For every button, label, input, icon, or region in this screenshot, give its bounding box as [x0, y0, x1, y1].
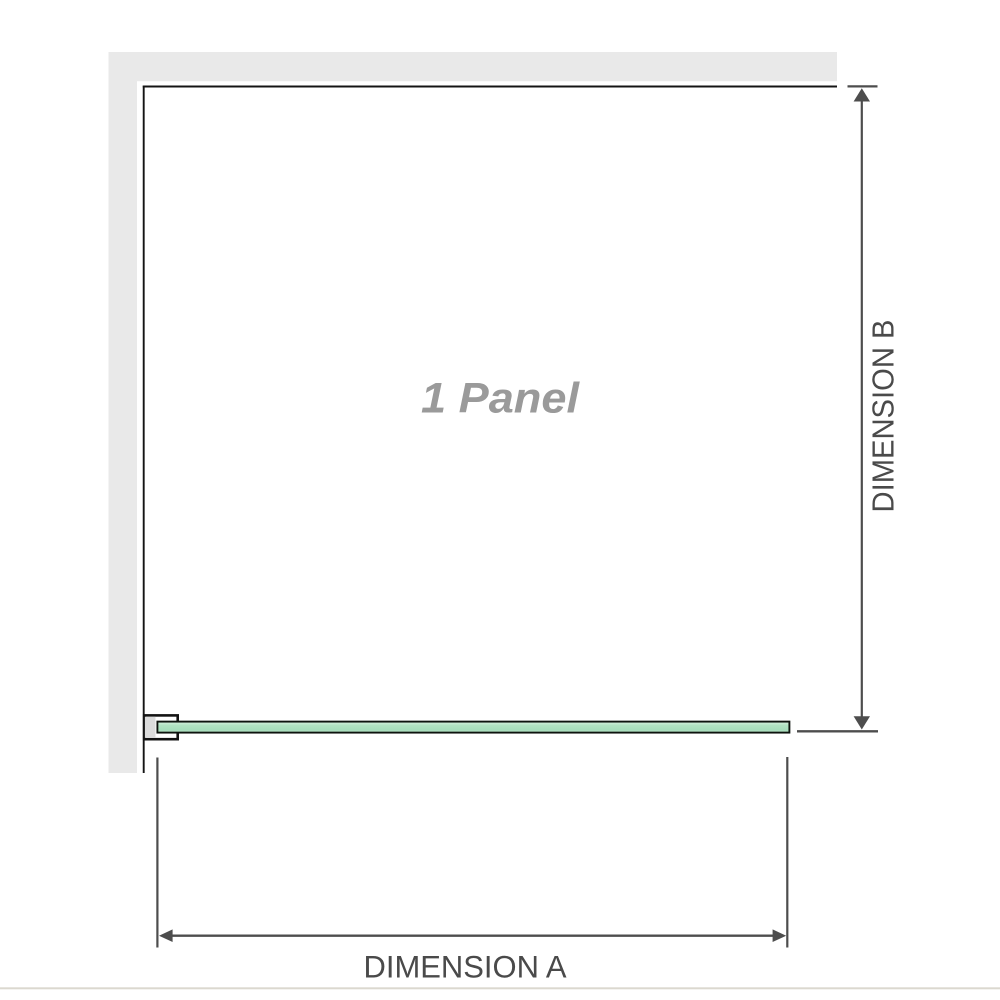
- svg-text:DIMENSION A: DIMENSION A: [364, 949, 567, 985]
- svg-text:DIMENSION B: DIMENSION B: [867, 320, 901, 513]
- svg-text:1 Panel: 1 Panel: [421, 376, 580, 423]
